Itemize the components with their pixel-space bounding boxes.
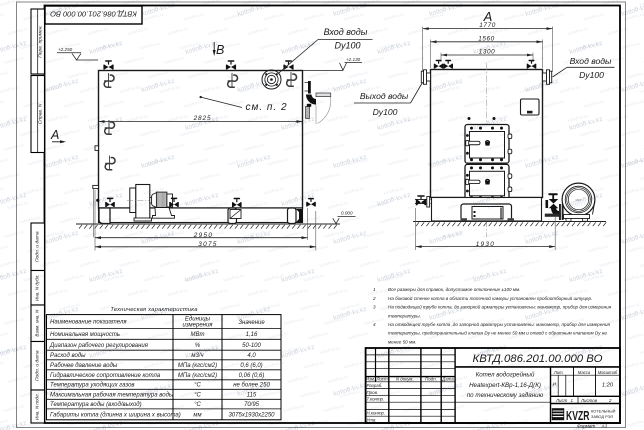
svg-text:2: 2 [608,398,612,403]
svg-text:2: 2 [372,296,376,301]
svg-text:Инв. N подл.: Инв. N подл. [35,393,40,420]
svg-text:Пров.: Пров. [367,390,379,395]
svg-text:1560: 1560 [478,35,495,42]
svg-text:1770: 1770 [479,22,496,29]
svg-text:°С: °С [194,383,201,389]
svg-text:Листов: Листов [580,398,598,403]
svg-text:3075х1930х2250: 3075х1930х2250 [228,412,275,418]
svg-text:Справ. N: Справ. N [38,103,44,124]
svg-text:менее 50 мм.: менее 50 мм. [388,339,417,344]
svg-text:Масштаб: Масштаб [598,370,618,375]
svg-text:Габариты котла (длинна х ширин: Габариты котла (длинна х ширина х высота… [50,412,181,418]
svg-text:температуры, предохранительный: температуры, предохранительный клапан Dу… [388,330,607,336]
svg-text:3: 3 [373,305,376,310]
svg-text:4,0: 4,0 [247,353,256,359]
svg-text:Лит.: Лит. [553,370,564,375]
svg-text:+2.130: +2.130 [346,57,361,62]
svg-text:0.000: 0.000 [341,211,353,216]
svg-text:мм: мм [193,412,201,418]
svg-text:°С: °С [194,402,201,408]
svg-text:А: А [50,128,59,142]
svg-text:Лист: Лист [555,398,568,403]
